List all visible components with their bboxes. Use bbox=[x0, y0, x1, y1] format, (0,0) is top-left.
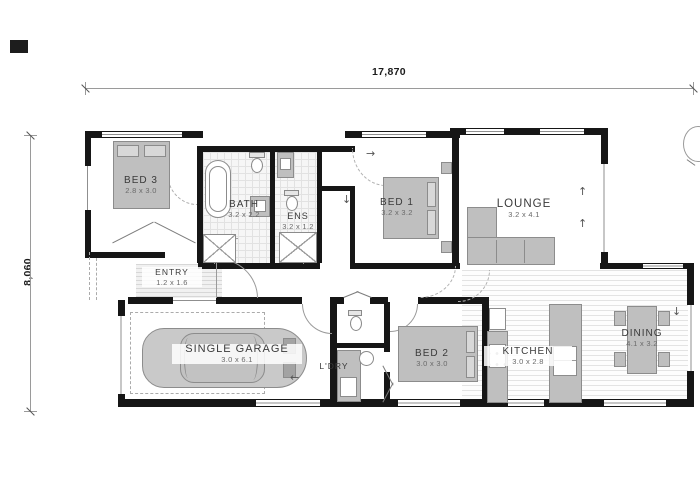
overall-depth-dimension: 8,060 bbox=[22, 237, 34, 307]
window-dining-bottom bbox=[604, 400, 666, 406]
corner-mark bbox=[10, 40, 28, 53]
wall-bed3-bottom bbox=[85, 252, 165, 258]
room-label-kitchen: KITCHEN 3.0 x 2.8 bbox=[484, 346, 572, 366]
room-name: BED 1 bbox=[352, 197, 442, 208]
arrow-left-icon: ← bbox=[290, 372, 299, 383]
room-name: ENTRY bbox=[142, 267, 202, 278]
garage-access-door-swing bbox=[302, 304, 332, 334]
window-lounge-top-2 bbox=[540, 129, 584, 134]
ens-basin bbox=[280, 158, 291, 170]
sofa-cushion-line bbox=[524, 240, 525, 263]
fridge bbox=[489, 308, 506, 330]
room-size: 1.2 x 1.6 bbox=[142, 278, 202, 287]
dining-chair bbox=[658, 311, 670, 326]
wall-dining-right-upper bbox=[687, 263, 694, 305]
room-label-ens: ENS 3.2 x 1.2 bbox=[253, 211, 343, 231]
porch-dashed-line bbox=[96, 258, 97, 300]
bed1-side-table bbox=[441, 241, 452, 253]
room-label-bed3: BED 3 2.8 x 3.0 bbox=[96, 175, 186, 195]
window-bed1-top bbox=[362, 132, 426, 137]
arrow-up-icon: ↑ bbox=[578, 218, 587, 229]
ens-shower bbox=[279, 232, 317, 263]
arrow-right-icon: → bbox=[366, 148, 375, 159]
room-name: BED 2 bbox=[387, 348, 477, 359]
room-label-dining: DINING 4.1 x 3.2 bbox=[597, 328, 687, 348]
dimension-line-left bbox=[30, 135, 31, 412]
room-label-ldry: L'DRY bbox=[305, 361, 363, 372]
wall-wc-ldry bbox=[337, 343, 384, 348]
room-size: 3.2 x 4.1 bbox=[479, 210, 569, 219]
room-name: ENS bbox=[253, 211, 343, 222]
room-size: 3.2 x 1.2 bbox=[253, 222, 343, 231]
arrow-up-icon: ↑ bbox=[578, 186, 587, 197]
robe-door-chevron bbox=[154, 222, 195, 244]
window-bed3-top bbox=[102, 132, 182, 137]
wall-bed1-lounge bbox=[452, 135, 459, 267]
room-size: 4.1 x 3.2 bbox=[597, 339, 687, 348]
sofa-cushion-line bbox=[496, 240, 497, 263]
porch-dashed-line bbox=[89, 252, 90, 300]
bed3-pillow bbox=[144, 145, 166, 157]
arrow-down-icon: ↓ bbox=[672, 306, 681, 317]
wall-mid-1 bbox=[128, 297, 173, 304]
room-name: LOUNGE bbox=[479, 199, 569, 210]
dining-chair bbox=[614, 352, 626, 367]
room-name: BED 3 bbox=[96, 175, 186, 186]
window-bed2-bottom bbox=[398, 400, 460, 406]
bed1-hall-door-swing bbox=[420, 266, 456, 298]
dining-chair bbox=[614, 311, 626, 326]
room-name: BATH bbox=[200, 199, 288, 210]
room-name: SINGLE GARAGE bbox=[172, 344, 302, 355]
window-dining-top bbox=[643, 264, 683, 268]
window-kitchen-bottom bbox=[508, 400, 544, 406]
washing-machine bbox=[340, 377, 357, 397]
plant-symbol-icon bbox=[683, 126, 700, 162]
room-size: 3.0 x 2.8 bbox=[484, 357, 572, 366]
room-name: L'DRY bbox=[305, 361, 363, 372]
wall-garage-left-upper bbox=[118, 300, 125, 316]
wall-garage-left-lower bbox=[118, 394, 125, 407]
sofa-base bbox=[467, 237, 555, 265]
window-lounge-top-1 bbox=[466, 129, 504, 134]
sidelight-front-door bbox=[173, 298, 216, 303]
wall-lounge-right-upper bbox=[601, 128, 608, 164]
room-size: 3.0 x 3.0 bbox=[387, 359, 477, 368]
dining-chair bbox=[658, 352, 670, 367]
room-label-lounge: LOUNGE 3.2 x 4.1 bbox=[479, 199, 569, 219]
bed1-side-table bbox=[441, 162, 452, 174]
window-garage-bottom bbox=[256, 400, 320, 406]
front-door-leaf bbox=[216, 258, 217, 298]
bath-toilet-icon bbox=[251, 158, 263, 173]
hall-door-chevron bbox=[356, 291, 371, 298]
bed3-pillow bbox=[117, 145, 139, 157]
dimension-line-top bbox=[85, 88, 693, 89]
wc-toilet-icon bbox=[350, 316, 362, 331]
room-size: 2.8 x 3.0 bbox=[96, 186, 186, 195]
garage-door bbox=[117, 316, 125, 394]
room-name: DINING bbox=[597, 328, 687, 339]
bath-shower bbox=[203, 234, 236, 263]
room-label-bed1: BED 1 3.2 x 3.2 bbox=[352, 197, 442, 217]
wall-ens-right bbox=[317, 146, 322, 263]
sliding-door-dining bbox=[688, 305, 694, 371]
robe-door-chevron bbox=[112, 222, 153, 244]
room-size: 3.2 x 3.2 bbox=[352, 208, 442, 217]
overall-width-dimension: 17,870 bbox=[344, 66, 434, 78]
room-label-garage: SINGLE GARAGE 3.0 x 6.1 bbox=[172, 344, 302, 364]
arrow-down-icon: ↓ bbox=[342, 194, 351, 205]
window-bed3-left bbox=[83, 166, 92, 210]
floor-plan: 17,870 8,060 bbox=[0, 0, 700, 500]
room-label-bed2: BED 2 3.0 x 3.0 bbox=[387, 348, 477, 368]
room-name: KITCHEN bbox=[484, 346, 572, 357]
sliding-door-lounge bbox=[600, 164, 608, 252]
room-label-entry: ENTRY 1.2 x 1.6 bbox=[142, 267, 202, 287]
wall-mid-2 bbox=[216, 297, 302, 304]
room-size: 3.0 x 6.1 bbox=[172, 355, 302, 364]
wall-mid-5 bbox=[418, 297, 488, 304]
